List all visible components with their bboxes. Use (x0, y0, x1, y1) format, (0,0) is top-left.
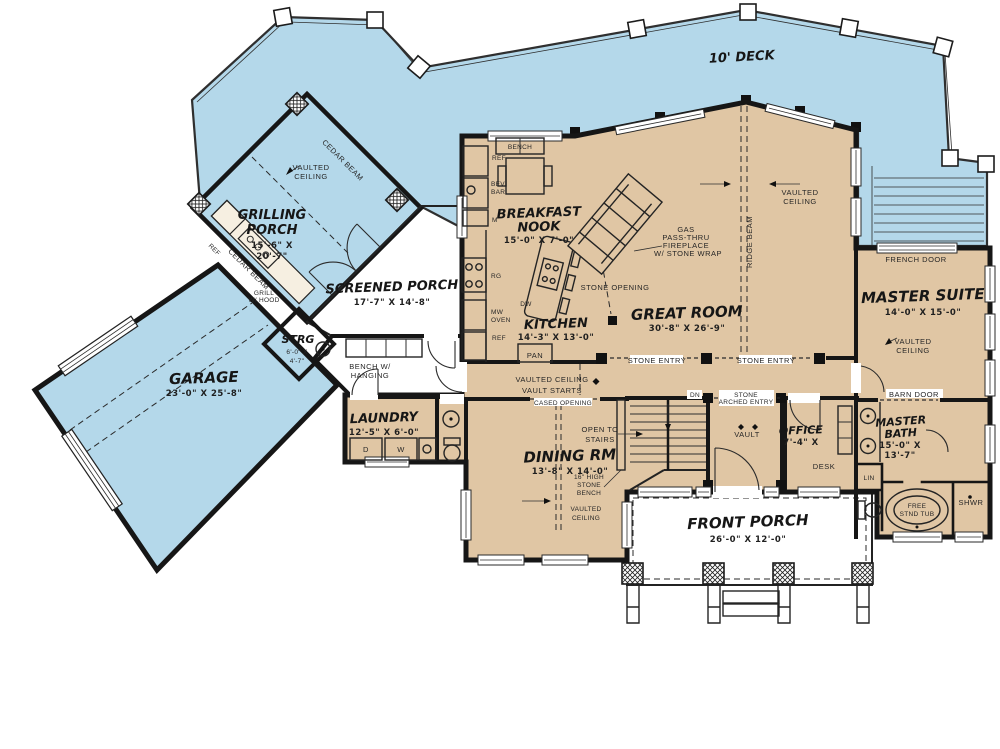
grilling-porch-label-1: GRILLING (238, 208, 307, 223)
front-door-opening (713, 486, 762, 498)
desk-label: DESK (813, 462, 835, 471)
bev-label: BEV (491, 181, 505, 188)
kitchen-dims: 14'-3" X 13'-0" (518, 333, 595, 343)
floor-plan-page: 10' DECK GARAGE 23'-0" X 25'-8" REF (0, 0, 1000, 749)
master-suite-dims: 14'-0" X 15'-0" (885, 308, 962, 318)
nook-dims: 15'-0" X 7'-0" (504, 236, 574, 246)
stone-bench-label-2: STONE (577, 482, 601, 489)
stone-bench (617, 400, 625, 470)
dn-label: DN (690, 392, 700, 399)
m-label: M (492, 217, 498, 224)
garage-dims: 23'-0" X 25'-8" (166, 389, 243, 399)
master-suite-door-opening (851, 363, 861, 393)
ridge-beam-label: RIDGE BEAM (745, 216, 754, 268)
bench-hanging-label-2: HANGING (351, 371, 390, 380)
stone-opening-label: STONE OPENING (581, 283, 650, 292)
great-room-dims: 30'-8" X 26'-9" (649, 324, 726, 334)
cased-opening-label: CASED OPENING (534, 400, 592, 407)
vault-label: VAULT (734, 430, 760, 439)
office-door-opening (788, 393, 820, 403)
ms-vaulted: VAULTED (895, 337, 932, 346)
office-dims: 7'-4" X (783, 438, 818, 448)
bench-hanging-label-1: BENCH W/ (349, 362, 391, 371)
dryer-label: D (363, 445, 369, 454)
oven-label: OVEN (491, 317, 511, 324)
ref-label-top: REF (492, 155, 506, 162)
rg-label: RG (491, 273, 501, 280)
french-door-label: FRENCH DOOR (885, 255, 946, 264)
stone-wrap-label: W/ STONE WRAP (654, 249, 722, 258)
bench-label: BENCH (508, 144, 532, 151)
bar-label: BAR (491, 189, 505, 196)
dw-label: DW (520, 301, 532, 308)
grilling-porch-vaulted: VAULTED (293, 163, 330, 172)
laundry-label: LAUNDRY (350, 410, 420, 427)
hall-vault-starts: VAULT STARTS (522, 386, 582, 395)
master-bath-dim-2: 13'-7" (884, 451, 915, 461)
storage-dim-1: 6'-0" X (286, 349, 308, 356)
stone-entry-2: STONE ENTRY (737, 356, 796, 365)
screened-porch-dims: 17'-7" X 14'-8" (354, 298, 431, 308)
stone-label: STONE (734, 392, 758, 399)
powder-door-opening (440, 394, 464, 404)
tub-label-1: FREE (908, 503, 927, 510)
grilling-porch-ceiling: CEILING (294, 172, 328, 181)
grilling-porch-label-2: PORCH (246, 223, 297, 238)
grill-label-2: W/ HOOD (248, 297, 279, 304)
stone-bench-label-3: BENCH (577, 490, 601, 497)
arched-entry-label: ARCHED ENTRY (719, 399, 774, 406)
stone-entry-1: STONE ENTRY (628, 356, 687, 365)
office-label: OFFICE (779, 423, 824, 438)
kitchen-label: KITCHEN (524, 316, 589, 333)
dining-vaulted: VAULTED (570, 506, 601, 513)
dining-label: DINING RM (523, 445, 616, 466)
nook-label-2: NOOK (517, 219, 561, 236)
open-to-label: OPEN TO (582, 425, 619, 434)
mw-label: MW (491, 309, 504, 316)
master-bath-dim-1: 15'-0" X (879, 441, 921, 451)
shwr-label: SHWR (959, 498, 984, 507)
storage-dim-2: 4'-7" (290, 358, 305, 365)
mudroom-hall-opening (457, 362, 467, 392)
front-porch-dims: 26'-0" X 12'-0" (710, 535, 787, 545)
screened-porch-door-opening (424, 331, 458, 341)
pan-label: PAN (527, 351, 543, 360)
washer-label: W (397, 445, 405, 454)
dining-ceiling: CEILING (572, 515, 600, 522)
barn-door-label: BARN DOOR (889, 390, 939, 399)
ms-ceiling: CEILING (896, 346, 930, 355)
stairs-label: STAIRS (585, 435, 615, 444)
hall-vaulted-ceiling: VAULTED CEILING (515, 375, 588, 384)
grilling-porch-dim-2: 20'-7" (256, 252, 287, 262)
ref-label-bottom: REF (492, 335, 506, 342)
stone-bench-label-1: 16" HIGH (574, 474, 604, 481)
gr-ceiling: CEILING (783, 197, 817, 206)
lin-label: LIN (863, 475, 874, 482)
master-bath-label-2: BATH (884, 426, 917, 441)
laundry-door-opening (350, 390, 378, 400)
grill-label-1: GRILL (254, 290, 274, 297)
storage-label: STRG (282, 333, 315, 346)
laundry-dims: 12'-5" X 6'-0" (349, 428, 419, 438)
tub-label-2: STND TUB (900, 511, 935, 518)
gr-vaulted: VAULTED (782, 188, 819, 197)
floor-plan-drawing: 10' DECK GARAGE 23'-0" X 25'-8" REF (0, 0, 1000, 749)
french-door (877, 243, 957, 253)
garage-label: GARAGE (169, 368, 240, 388)
grilling-porch-dim-1: 15'-6" X (251, 241, 293, 251)
